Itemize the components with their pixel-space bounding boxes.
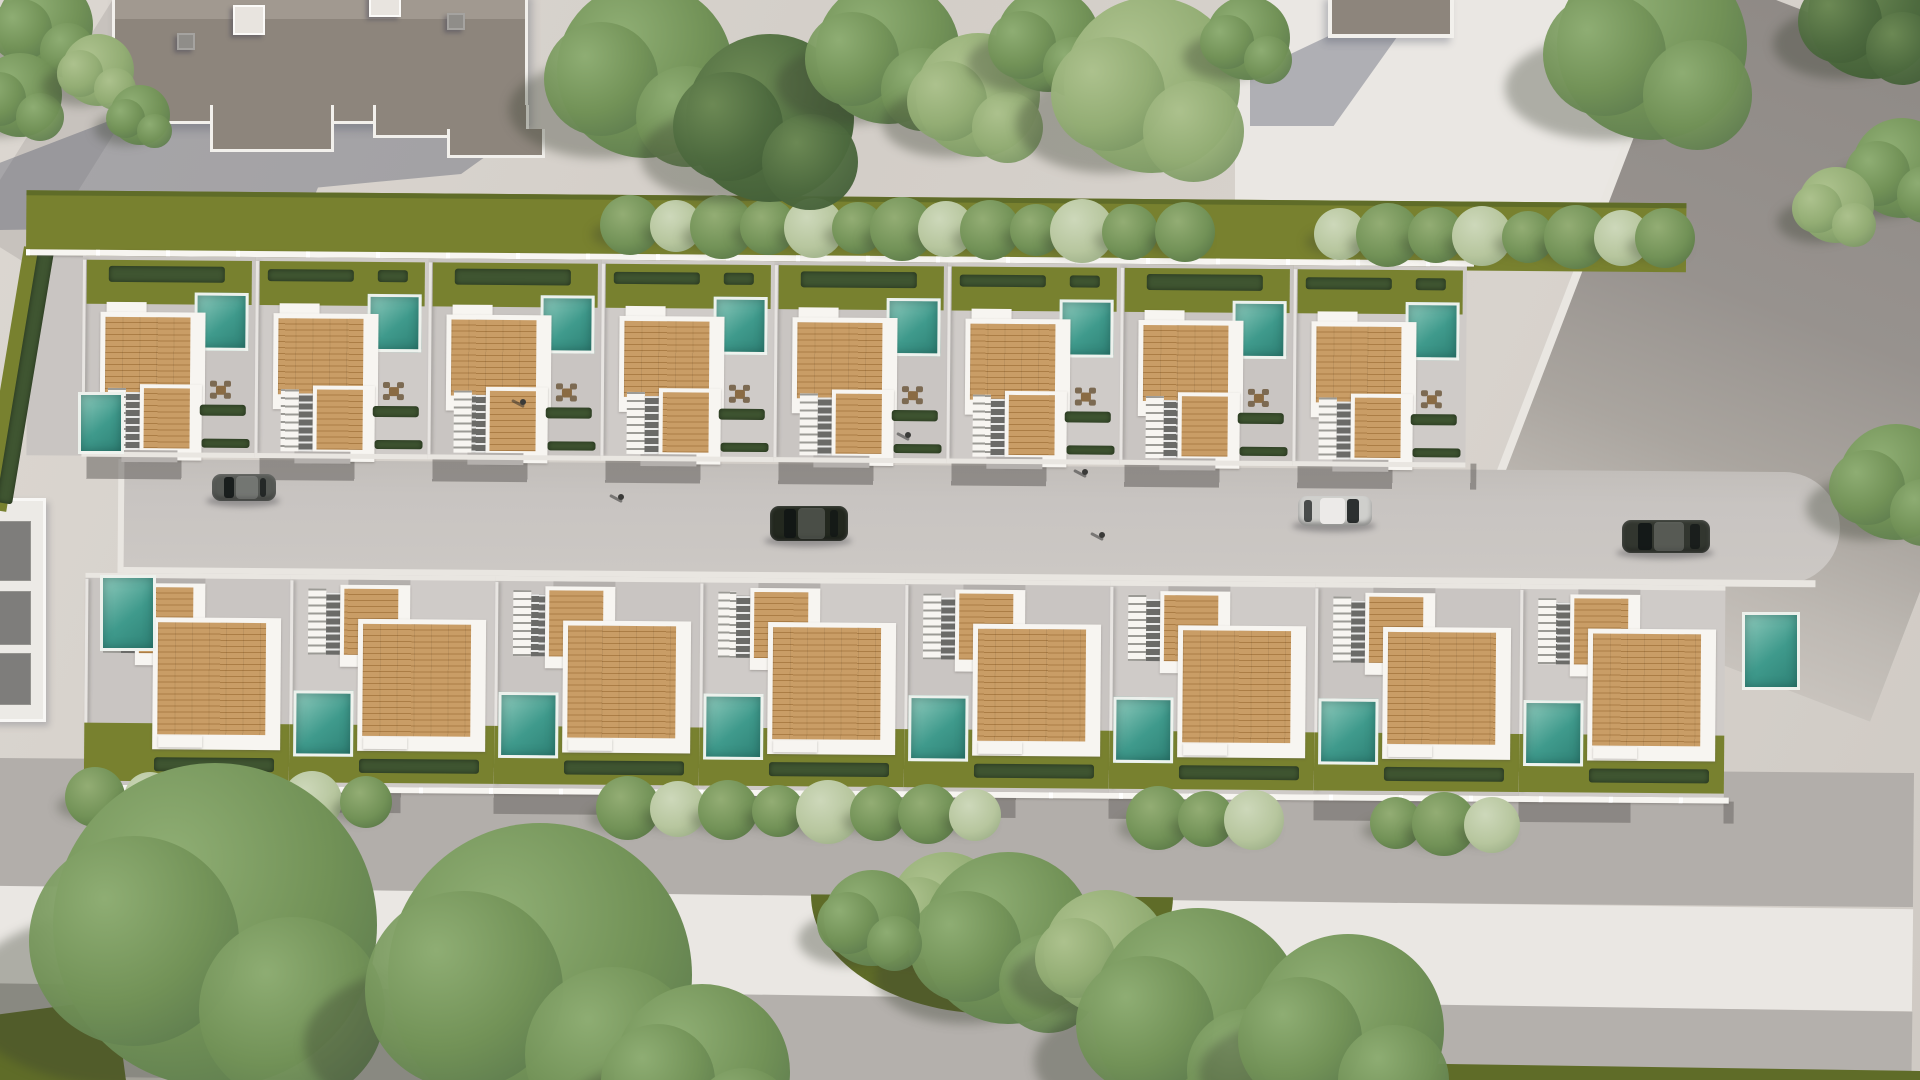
stair-well	[990, 399, 1004, 457]
tree-canopy-lobe	[1643, 40, 1752, 149]
hedge-row	[892, 410, 938, 421]
tree-canopy-lobe	[1244, 36, 1292, 84]
car	[212, 474, 276, 501]
hedge-bed	[1179, 765, 1299, 780]
chair	[729, 397, 736, 403]
plunge-pool	[703, 694, 764, 760]
bush-hedge-bottom	[340, 776, 392, 828]
chair	[743, 397, 750, 403]
plunge-pool-end	[100, 575, 156, 651]
plunge-pool-end	[78, 392, 124, 454]
hedge-bed	[109, 266, 225, 283]
roof-deck-main	[767, 622, 896, 755]
deck-wood	[662, 392, 708, 452]
bush-hedge-top	[1155, 202, 1215, 262]
plot-divider	[427, 262, 432, 454]
deck-step-tab	[363, 737, 407, 749]
roof-deck-small	[485, 387, 548, 463]
stair-well	[736, 596, 750, 658]
person	[905, 432, 911, 438]
stair-railing	[718, 592, 737, 658]
bush-hedge-bottom	[1464, 797, 1520, 853]
tree-canopy-lobe	[762, 114, 859, 211]
roof-deck-main	[357, 619, 486, 752]
chair	[902, 386, 909, 392]
hedge-bed	[1147, 274, 1263, 291]
hedge-row	[373, 406, 419, 417]
plunge-pool	[1113, 697, 1174, 763]
deck-step-tab	[773, 740, 817, 752]
roof-deck-small	[1177, 392, 1240, 468]
hedge-bed	[1589, 769, 1709, 784]
hedge-bed	[564, 760, 684, 775]
stair-railing	[1145, 396, 1163, 458]
bush-hedge-bottom	[698, 780, 758, 840]
house-unit-upper	[946, 262, 1121, 463]
hedge-row	[200, 405, 246, 416]
stair-railing	[1333, 596, 1352, 662]
chair	[397, 394, 404, 400]
tree-canopy-lobe	[867, 916, 922, 971]
chair	[224, 381, 231, 387]
deck-wood	[1182, 630, 1291, 743]
chair	[210, 381, 217, 387]
roof-deck-main	[1382, 627, 1511, 760]
hedge-row	[547, 441, 595, 450]
house-unit-upper	[1292, 265, 1467, 466]
chair	[556, 395, 563, 401]
deck-step-tab	[1593, 747, 1637, 759]
house-unit-upper	[600, 260, 775, 461]
hedge-bed	[1416, 278, 1446, 290]
hedge-bed	[769, 762, 889, 777]
deck-wood	[143, 388, 189, 448]
car-roof	[798, 508, 825, 539]
hedge-row	[719, 409, 765, 420]
stair-well	[1351, 601, 1365, 663]
hedge-row	[1239, 447, 1287, 456]
deck-step-tab	[978, 742, 1022, 754]
stair-well	[1146, 599, 1160, 661]
tree-canopy-lobe	[1832, 203, 1876, 247]
car-roof	[236, 476, 258, 499]
car-windshield	[1347, 499, 1359, 523]
hedge-row	[201, 439, 249, 448]
hedge-bed	[359, 759, 479, 774]
chair	[383, 394, 390, 400]
roof-deck-main	[152, 617, 281, 750]
house-unit-lower	[1314, 582, 1521, 796]
hedge-row	[893, 444, 941, 453]
deck-wood	[157, 622, 266, 735]
roof-deck-small	[831, 390, 894, 466]
chair	[1435, 390, 1442, 396]
house-unit-lower	[1519, 584, 1726, 798]
deck-step-tab	[1388, 745, 1432, 757]
chair	[224, 393, 231, 399]
person	[1082, 469, 1088, 475]
stair-railing	[1128, 595, 1147, 661]
deck-step-tab	[158, 735, 202, 747]
stair-well	[471, 395, 485, 453]
car	[770, 506, 848, 541]
house-unit-upper	[427, 258, 602, 459]
chair	[916, 386, 923, 392]
stair-railing	[799, 393, 817, 455]
stair-well	[531, 594, 545, 656]
chair	[210, 393, 217, 399]
roof-deck-main	[1587, 628, 1716, 761]
hedge-bed	[960, 275, 1046, 288]
stair-well	[1336, 402, 1350, 460]
stair-railing	[308, 588, 327, 654]
stair-railing	[972, 395, 990, 457]
deck-wood	[316, 390, 362, 450]
chair	[729, 385, 736, 391]
chair	[1262, 401, 1269, 407]
house-unit-upper	[1119, 264, 1294, 465]
chair	[1089, 388, 1096, 394]
chair	[570, 383, 577, 389]
plunge-pool	[293, 690, 354, 756]
tree-canopy-lobe	[137, 114, 172, 149]
plot-divider	[600, 264, 605, 456]
plot-divider	[1292, 269, 1297, 461]
hedge-row	[546, 407, 592, 418]
plot-divider	[946, 266, 951, 458]
stair-well	[1163, 400, 1177, 458]
person	[618, 494, 624, 500]
hedge-row	[1412, 448, 1460, 457]
terrace-table-set	[383, 382, 405, 400]
plunge-pool	[908, 695, 969, 761]
chair	[1421, 402, 1428, 408]
terrace-table-set	[729, 385, 751, 403]
terrace-table-set	[210, 381, 232, 399]
hedge-bed	[268, 269, 354, 282]
bush-hedge-bottom	[949, 789, 1001, 841]
car	[1298, 496, 1372, 526]
deck-wood	[624, 321, 710, 398]
house-unit-lower	[289, 574, 496, 788]
deck-wood	[1387, 632, 1496, 745]
hedge-bed	[614, 272, 700, 285]
terrace-table-set	[556, 383, 578, 401]
terrace-table-set	[1248, 389, 1270, 407]
deck-step-tab	[568, 738, 612, 750]
house-unit-lower	[699, 578, 906, 792]
stair-railing	[626, 392, 644, 454]
car-rear-glass	[260, 478, 266, 497]
hedge-bed	[1306, 277, 1392, 290]
roof-deck-main	[1177, 625, 1306, 758]
hedge-row	[1066, 445, 1114, 454]
person	[1099, 532, 1105, 538]
hedge-bed	[1384, 767, 1504, 782]
chair	[1435, 402, 1442, 408]
house-unit-lower	[1109, 581, 1316, 795]
stair-railing	[513, 590, 532, 656]
chair	[1075, 387, 1082, 393]
terrace-table-set	[902, 386, 924, 404]
deck-wood	[977, 629, 1086, 742]
roof-deck-main	[562, 620, 691, 753]
plunge-pool	[1318, 698, 1379, 764]
deck-wood	[451, 320, 537, 397]
bush-hedge-bottom	[1224, 790, 1284, 850]
deck-step-tab	[1183, 743, 1227, 755]
stair-well	[326, 593, 340, 655]
hedge-row	[1411, 414, 1457, 425]
deck-wood	[1316, 326, 1402, 403]
deck-wood	[772, 627, 881, 740]
chair	[556, 383, 563, 389]
roof-deck-main	[972, 624, 1101, 757]
stair-well	[941, 597, 955, 659]
stair-well	[125, 392, 139, 450]
roof-deck-small	[1350, 394, 1413, 470]
house-unit-upper	[254, 257, 429, 458]
chair	[1248, 401, 1255, 407]
tree-canopy-lobe	[1143, 81, 1244, 182]
hedge-bed	[455, 269, 571, 286]
roof-deck-small	[658, 388, 721, 464]
car-rear-glass	[1690, 524, 1700, 549]
plot-divider	[773, 265, 778, 457]
hedge-bed	[974, 764, 1094, 779]
stair-well	[644, 396, 658, 454]
chair	[397, 382, 404, 388]
deck-wood	[1143, 325, 1229, 402]
person	[520, 399, 526, 405]
terrace-table-set	[1075, 387, 1097, 405]
chair	[1421, 390, 1428, 396]
car-roof	[1654, 522, 1684, 551]
house-unit-upper	[773, 261, 948, 462]
hedge-row	[374, 440, 422, 449]
car-rear-glass	[830, 510, 838, 537]
house-unit-lower	[494, 576, 701, 790]
hedge-bed	[724, 273, 754, 285]
hedge-row	[1065, 411, 1111, 422]
hedge-bed	[1070, 275, 1100, 287]
stair-well	[817, 397, 831, 455]
stair-well	[1556, 602, 1570, 664]
chair	[902, 398, 909, 404]
chair	[1248, 389, 1255, 395]
deck-wood	[797, 322, 883, 399]
stair-railing	[280, 389, 298, 451]
deck-wood	[567, 625, 676, 738]
car-windshield	[784, 509, 796, 538]
car-roof	[1320, 498, 1345, 524]
house-unit-lower	[904, 579, 1111, 793]
deck-wood	[278, 318, 364, 395]
aerial-development-render	[0, 0, 1920, 1080]
car-rear-glass	[1304, 500, 1312, 522]
hedge-bed	[378, 270, 408, 282]
deck-wood	[1181, 396, 1227, 456]
stair-well	[298, 393, 312, 451]
chair	[570, 395, 577, 401]
plot-divider	[1119, 268, 1124, 460]
hedge-row	[720, 443, 768, 452]
chair	[383, 382, 390, 388]
stair-railing	[453, 391, 471, 453]
roof-deck-small	[312, 385, 375, 461]
hedge-row	[1238, 413, 1284, 424]
bush-hedge-top	[1102, 204, 1158, 260]
deck-wood	[105, 317, 191, 394]
roof-deck-small	[139, 384, 202, 460]
roof-deck-small	[1004, 391, 1067, 467]
stair-railing	[1318, 397, 1336, 459]
car-windshield	[1638, 523, 1652, 550]
stair-railing	[923, 593, 942, 659]
chair	[1262, 389, 1269, 395]
plunge-pool	[1523, 700, 1584, 766]
deck-wood	[1354, 398, 1400, 458]
plunge-pool	[498, 692, 559, 758]
chair	[1075, 399, 1082, 405]
deck-wood	[1008, 395, 1054, 455]
deck-wood	[835, 394, 881, 454]
deck-wood	[1592, 634, 1701, 747]
terrace-table-set	[1421, 390, 1443, 408]
chair	[916, 398, 923, 404]
stair-railing	[1538, 598, 1557, 664]
plot-divider	[254, 261, 259, 453]
deck-wood	[362, 624, 471, 737]
car-windshield	[224, 477, 234, 498]
car	[1622, 520, 1710, 553]
plunge-pool-end	[1742, 612, 1800, 690]
bush-hedge-top	[1635, 208, 1695, 268]
hedge-bed	[801, 271, 917, 288]
chair	[743, 385, 750, 391]
deck-wood	[970, 324, 1056, 401]
chair	[1089, 400, 1096, 406]
